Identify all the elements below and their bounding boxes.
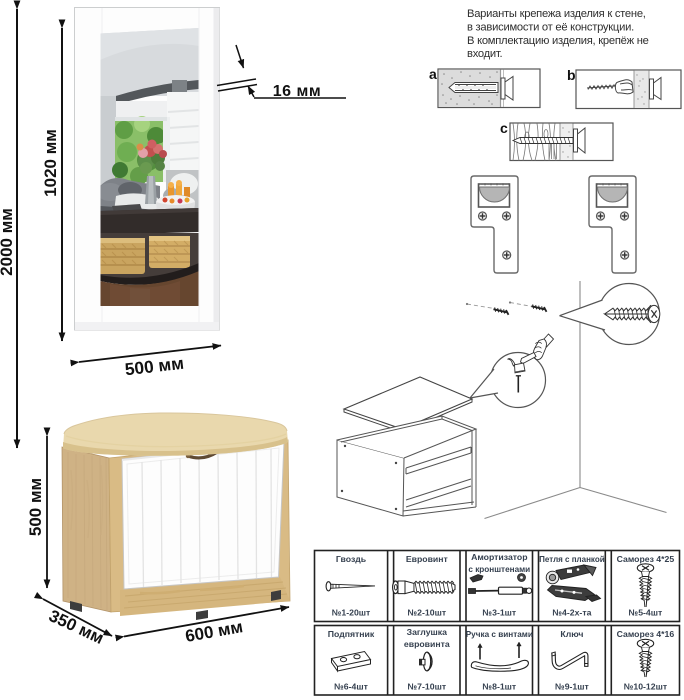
svg-text:№3-1шт: №3-1шт: [482, 608, 516, 618]
svg-text:b: b: [567, 67, 576, 83]
svg-text:Варианты крепежа изделия к сте: Варианты крепежа изделия к стене,: [467, 8, 646, 20]
svg-text:16 мм: 16 мм: [273, 83, 321, 100]
svg-text:500 мм: 500 мм: [26, 478, 45, 536]
svg-text:В комплектацию изделия, крепёж: В комплектацию изделия, крепёж не: [467, 35, 649, 47]
svg-text:Евровинт: Евровинт: [406, 554, 449, 564]
svg-text:№7-10шт: №7-10шт: [408, 682, 447, 692]
svg-text:№2-10шт: №2-10шт: [408, 608, 447, 618]
svg-text:Саморез 4*25: Саморез 4*25: [617, 554, 675, 564]
svg-text:Ключ: Ключ: [560, 629, 583, 639]
svg-text:в зависимости от её конструкци: в зависимости от её конструкции.: [467, 21, 634, 33]
svg-text:№6-4шт: №6-4шт: [334, 682, 368, 692]
svg-text:Заглушка: Заглушка: [407, 627, 448, 637]
svg-text:евровинта: евровинта: [404, 639, 450, 649]
svg-text:№8-1шт: №8-1шт: [482, 682, 516, 692]
svg-text:№5-4шт: №5-4шт: [629, 608, 663, 618]
svg-text:Амортизатор: Амортизатор: [471, 552, 527, 562]
svg-text:Подпятник: Подпятник: [328, 629, 375, 639]
svg-text:Петля с планкой: Петля с планкой: [539, 555, 605, 564]
svg-text:с кронштенами: с кронштенами: [468, 565, 530, 574]
svg-text:№9-1шт: №9-1шт: [555, 682, 589, 692]
svg-text:Ручка с винтами: Ручка с винтами: [466, 630, 533, 639]
svg-text:входит.: входит.: [467, 48, 503, 60]
svg-text:Гвоздь: Гвоздь: [336, 554, 366, 564]
svg-text:c: c: [500, 120, 508, 136]
svg-text:2000 мм: 2000 мм: [0, 208, 16, 276]
svg-text:1020 мм: 1020 мм: [41, 129, 60, 197]
svg-text:№4-2х-та: №4-2х-та: [552, 608, 591, 618]
svg-text:Саморез 4*16: Саморез 4*16: [617, 629, 675, 639]
svg-text:№10-12шт: №10-12шт: [624, 682, 668, 692]
svg-text:a: a: [429, 66, 437, 82]
svg-text:№1-20шт: №1-20шт: [332, 608, 371, 618]
